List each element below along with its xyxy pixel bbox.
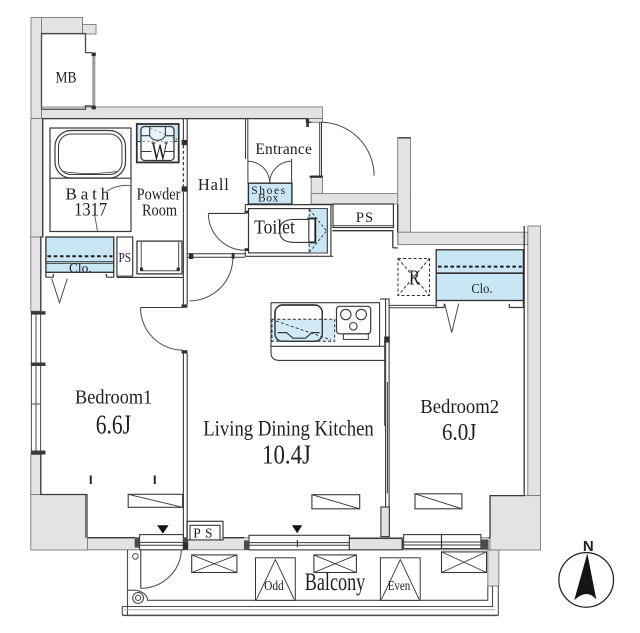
- svg-text:10.4J: 10.4J: [262, 440, 311, 470]
- svg-text:6.0J: 6.0J: [442, 420, 476, 446]
- svg-text:R: R: [409, 265, 420, 289]
- svg-text:Entrance: Entrance: [255, 141, 312, 158]
- svg-text:Living Dining Kitchen: Living Dining Kitchen: [203, 416, 374, 441]
- svg-text:Room: Room: [142, 201, 177, 220]
- svg-text:N: N: [583, 538, 594, 555]
- svg-text:1317: 1317: [74, 200, 107, 221]
- svg-text:Clo.: Clo.: [471, 282, 492, 297]
- svg-text:W: W: [151, 137, 168, 166]
- svg-text:Toilet: Toilet: [254, 217, 295, 239]
- svg-text:Hall: Hall: [198, 175, 229, 194]
- svg-text:Even: Even: [388, 578, 411, 593]
- svg-text:MB: MB: [56, 69, 77, 86]
- svg-text:Bedroom1: Bedroom1: [75, 387, 152, 409]
- svg-text:Bedroom2: Bedroom2: [420, 396, 499, 418]
- svg-text:Odd: Odd: [264, 578, 284, 593]
- svg-text:Clo.: Clo.: [69, 261, 92, 276]
- svg-text:Box: Box: [258, 193, 279, 205]
- svg-text:PS: PS: [356, 210, 373, 226]
- svg-text:PS: PS: [119, 251, 132, 266]
- svg-text:Balcony: Balcony: [305, 569, 366, 596]
- svg-text:6.6J: 6.6J: [96, 410, 131, 440]
